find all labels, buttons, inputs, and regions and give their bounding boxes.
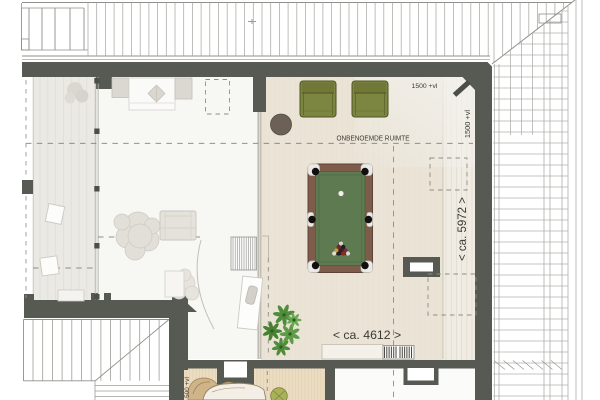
svg-text:< ca. 5972 >: < ca. 5972 >	[457, 197, 469, 261]
svg-text:500 +vl: 500 +vl	[184, 377, 191, 398]
svg-text:ONBENOEMDE RUIMTE: ONBENOEMDE RUIMTE	[337, 134, 410, 143]
svg-text:1500 +vl: 1500 +vl	[463, 110, 472, 139]
svg-text:< ca. 4612 >: < ca. 4612 >	[333, 328, 401, 342]
svg-text:1500 +vl: 1500 +vl	[412, 83, 438, 90]
